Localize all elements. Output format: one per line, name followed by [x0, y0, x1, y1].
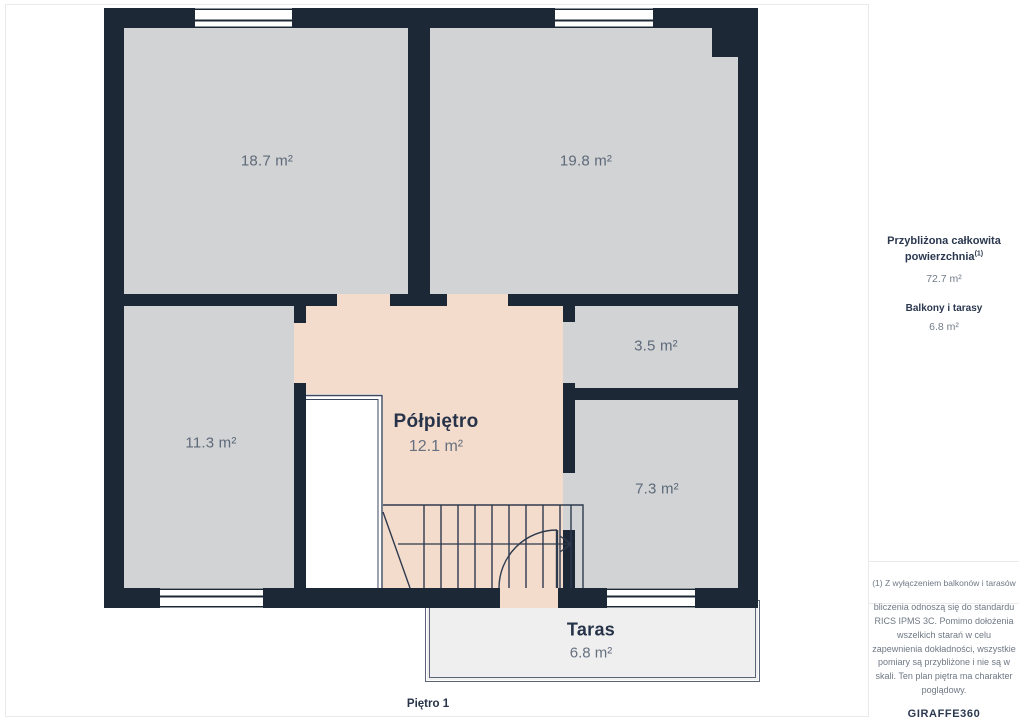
wall-left-of-halffloor	[294, 383, 306, 588]
info-sidebar: Przybliżona całkowita powierzchnia(1) 72…	[868, 4, 1019, 717]
total-area-superscript: (1)	[975, 250, 984, 257]
total-area-value: 72.7 m²	[926, 273, 962, 285]
wall-mid-right	[508, 294, 738, 306]
halffloor-area: 12.1 m²	[409, 438, 463, 456]
wall-stub-left	[294, 306, 306, 323]
total-area-label-text: Przybliżona całkowita powierzchnia	[887, 235, 1001, 264]
wall-between-small-rooms	[575, 388, 738, 400]
balcony-label: Balkony i tarasy	[906, 303, 983, 314]
wall-notch-top-right	[712, 28, 738, 57]
terrace-floor	[427, 602, 758, 680]
room-floors	[124, 28, 738, 608]
terrace-area: 6.8 m²	[570, 645, 613, 662]
terrace-outline	[426, 601, 760, 682]
wall-stub-right	[563, 306, 575, 322]
wall-left	[104, 8, 124, 608]
wall-mid-left	[124, 294, 337, 306]
floorplan-page: 18.7 m² 19.8 m² 11.3 m² 3.5 m² 7.3 m² Pó…	[0, 0, 1024, 724]
logo-text-secondary: 360	[960, 708, 980, 720]
stairwell-void	[306, 394, 383, 588]
disclaimer-section: bliczenia odnoszą się do standardu RICS …	[869, 603, 1019, 717]
room-area-label: 19.8 m²	[560, 153, 612, 170]
balcony-value: 6.8 m²	[929, 321, 959, 333]
terrace-doorway-opening	[500, 588, 558, 608]
logo-text-primary: GIRAFFE	[908, 708, 960, 720]
floor-caption: Piętro 1	[407, 698, 449, 710]
terrace-name: Taras	[567, 620, 615, 641]
window-top-left	[195, 8, 292, 28]
stairwell-void-floor	[306, 394, 383, 588]
room-area-label: 18.7 m²	[241, 153, 293, 170]
wall-right	[738, 8, 758, 608]
room-area-label: 11.3 m²	[185, 435, 236, 452]
room-area-label: 3.5 m²	[634, 338, 678, 355]
wall-divider-top-rooms	[408, 28, 430, 306]
sidebar-summary: Przybliżona całkowita powierzchnia(1) 72…	[869, 4, 1019, 561]
halffloor-name: Półpiętro	[393, 411, 478, 433]
wall-right-of-halffloor-mid	[563, 383, 575, 473]
footnote: (1) Z wyłączeniem balkonów i tarasów	[869, 561, 1019, 603]
room-area-label: 7.3 m²	[635, 481, 679, 498]
disclaimer-text: bliczenia odnoszą się do standardu RICS …	[871, 601, 1017, 699]
window-bottom-right	[607, 588, 695, 608]
giraffe360-logo: GIRAFFE360	[908, 708, 981, 720]
window-top-right	[555, 8, 653, 28]
wall-crossbar	[390, 294, 447, 306]
total-area-label: Przybliżona całkowita powierzchnia(1)	[874, 233, 1014, 266]
window-bottom-left	[160, 588, 263, 608]
